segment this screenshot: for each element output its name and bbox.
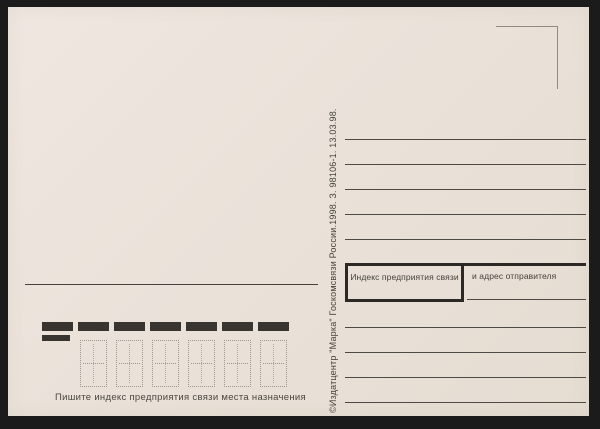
digit-stencil-cell [80,340,107,387]
postcard-sheet: ©Издатцентр "Марка" Госкомсвязи России.1… [8,7,589,416]
sender-index-box: Индекс предприятия связи [345,263,464,302]
sender-address-underline [467,299,586,300]
index-bar [186,322,217,331]
address-line [345,139,586,140]
address-line [345,327,586,328]
index-bar [258,322,289,331]
address-line [345,402,586,403]
postal-index-bars [42,322,289,331]
postal-index-hint-text: Пишите индекс предприятия связи места на… [55,392,306,403]
sender-address-lines [345,327,586,403]
sender-index-box-label: Индекс предприятия связи [350,272,458,282]
digit-stencil-cell [116,340,143,387]
index-bar [42,322,73,331]
index-bar [78,322,109,331]
sender-address-label: и адрес отправителя [472,271,556,281]
digit-stencil-cell [224,340,251,387]
index-bar [150,322,181,331]
digit-stencil-cell [188,340,215,387]
stamp-corner-mark-horizontal [496,26,558,27]
digit-stencil-cell [260,340,287,387]
publisher-imprint-vertical-text: ©Издатцентр "Марка" Госкомсвязи России.1… [328,77,340,413]
digit-stencil-cell [152,340,179,387]
address-line [345,377,586,378]
address-line [345,189,586,190]
index-sample-bar [42,335,70,341]
postal-code-digit-stencils [80,340,287,387]
address-line [345,164,586,165]
address-line [345,352,586,353]
index-bar [114,322,145,331]
index-bar [222,322,253,331]
address-line [345,214,586,215]
scanned-postcard-back: { "postcard": { "imprint": "©Издатцентр … [0,0,600,429]
recipient-address-lines [345,139,586,240]
stamp-corner-mark-vertical [557,26,558,89]
address-line [345,239,586,240]
message-area-divider-line [25,284,318,285]
